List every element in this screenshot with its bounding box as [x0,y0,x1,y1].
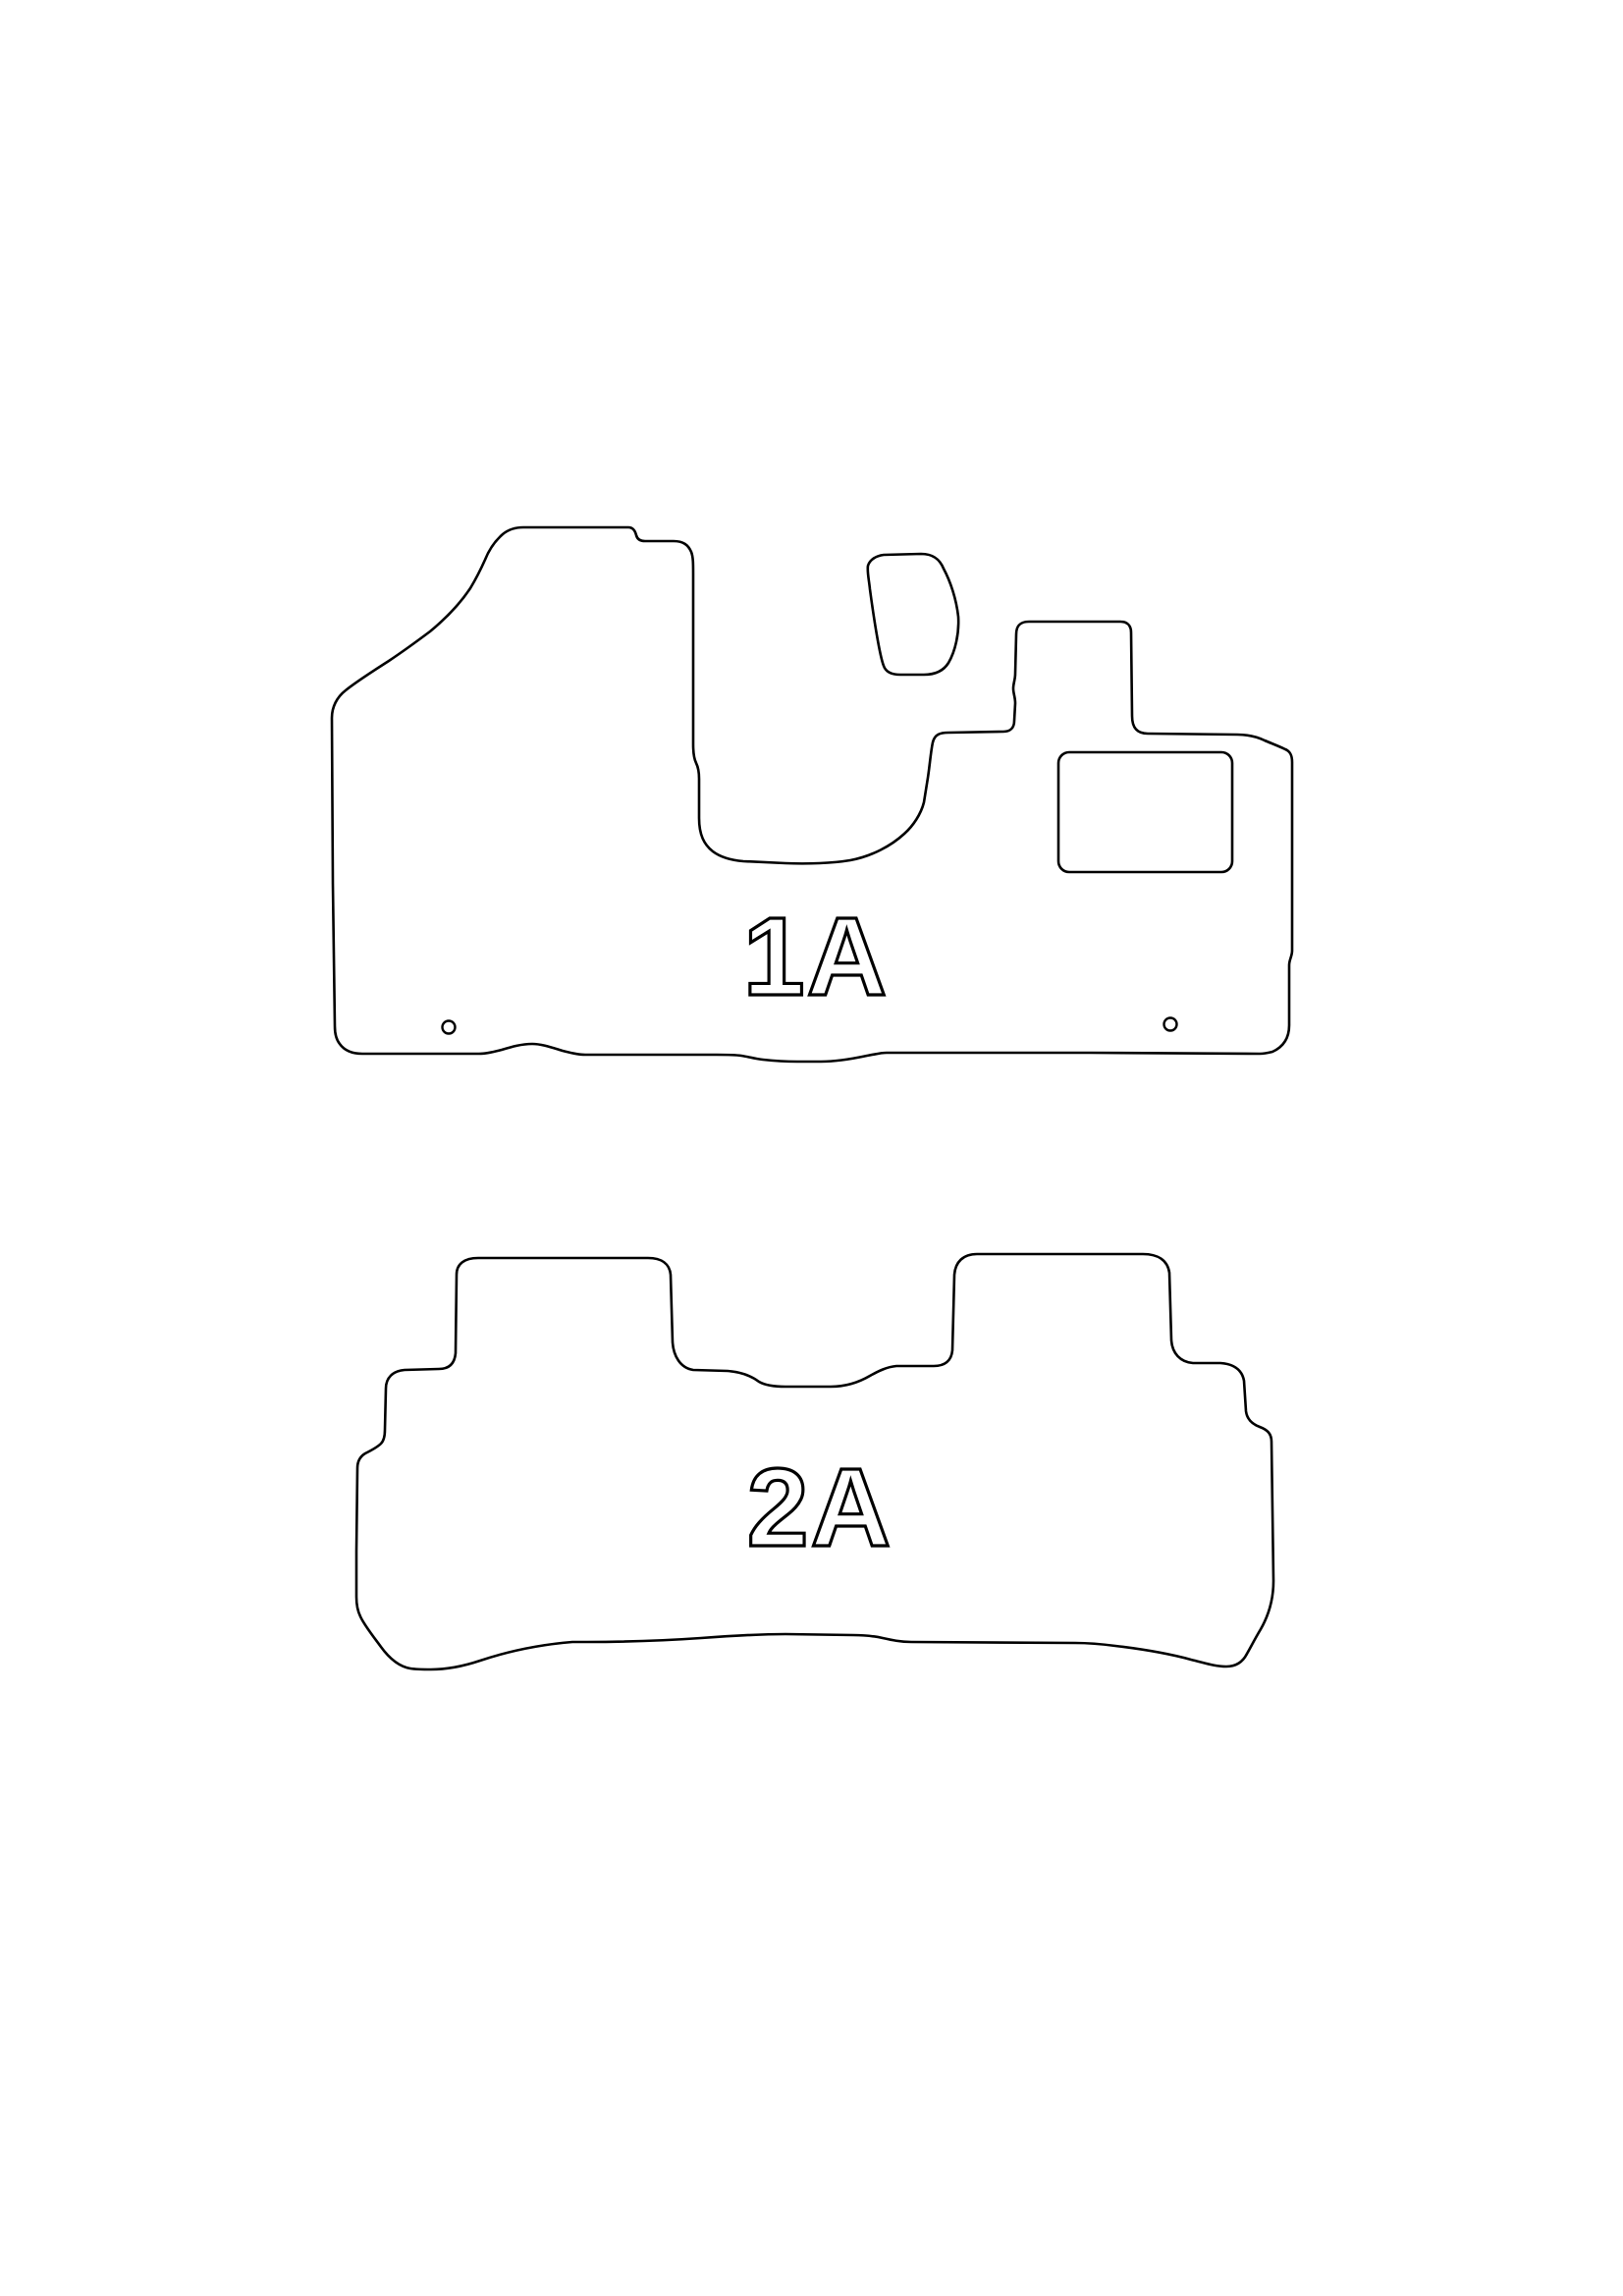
mat-1a: 1A [332,527,1292,1062]
mat-1a-heel-pad [1058,752,1232,872]
mat-1a-small-cutout [868,554,958,675]
mat-template-drawing: 1A 2A [0,0,1623,2296]
mat-1a-label: 1A [743,895,889,1018]
mat-1a-fixing-hole-right [1164,1018,1177,1031]
mat-2a: 2A [356,1254,1273,1669]
mat-2a-label: 2A [747,1446,893,1569]
template-page: 1A 2A [0,0,1623,2296]
mat-1a-fixing-hole-left [443,1021,456,1034]
